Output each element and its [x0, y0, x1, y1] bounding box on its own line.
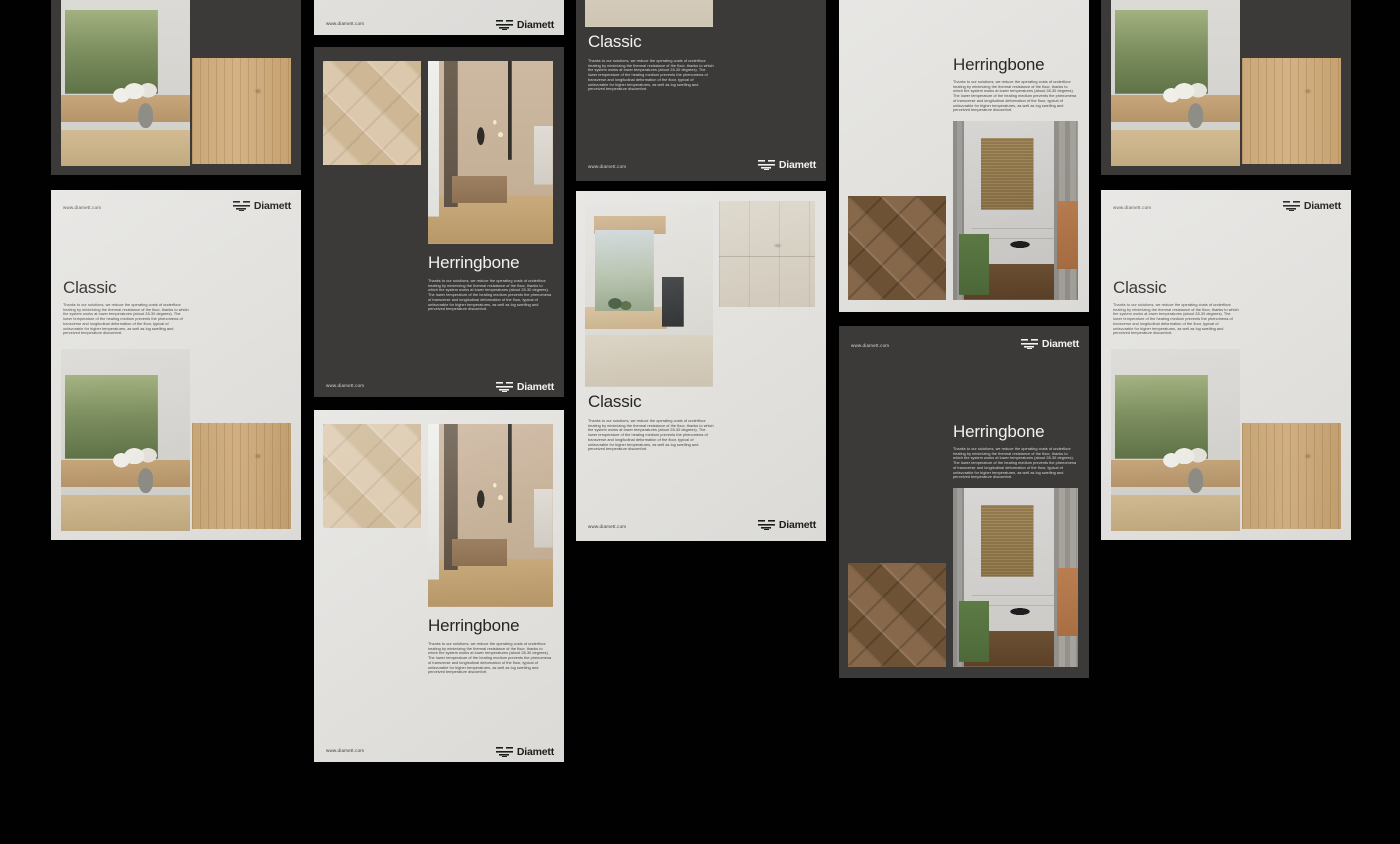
poster-page: Classic Thanks to our solutions, we redu…: [576, 191, 826, 541]
diamett-logo-icon: [496, 19, 513, 31]
poster-page: www.diamett.com Diamett Classic Thanks t…: [51, 190, 301, 540]
window-bench-photo: [1111, 349, 1240, 531]
window-bench-photo: [61, 349, 190, 531]
oak-swatch-image: [1242, 58, 1341, 164]
poster-herringbone-dark: www.diamett.com Diamett Herringbone Than…: [839, 326, 1089, 678]
poster-page: Herringbone Thanks to our solutions, we …: [314, 47, 564, 397]
brand-wordmark: Diamett: [1042, 339, 1079, 350]
diamett-logo-icon: [1021, 338, 1038, 350]
poster-title: Classic: [588, 392, 641, 412]
site-url: www.diamett.com: [63, 206, 101, 211]
poster-classic-dark-partial: [1101, 0, 1351, 175]
poster-page: www.diamett.com Diamett: [314, 0, 564, 35]
brand-wordmark: Diamett: [1304, 201, 1341, 212]
window-seat-photo: [585, 203, 713, 387]
poster-page: www.diamett.com Diamett Classic Thanks t…: [1101, 190, 1351, 540]
poster-title: Herringbone: [428, 616, 519, 636]
poster-classic-dark-partial: Classic Thanks to our solutions, we redu…: [576, 0, 826, 181]
interior-room-photo: [428, 424, 553, 607]
poster-body: Thanks to our solutions, we reduce the o…: [428, 642, 552, 675]
poster-body: Thanks to our solutions, we reduce the o…: [1113, 303, 1239, 336]
poster-title: Herringbone: [953, 55, 1044, 75]
diamett-logo: Diamett: [496, 381, 554, 393]
diamett-logo: Diamett: [1021, 338, 1079, 350]
brand-wordmark: Diamett: [517, 20, 554, 31]
portfolio-canvas: www.diamett.com Diamett Classic Thanks t…: [0, 0, 1400, 844]
poster-page: Classic Thanks to our solutions, we redu…: [576, 0, 826, 181]
poster-page: [51, 0, 301, 175]
diamett-logo-icon: [233, 200, 250, 212]
diamett-logo: Diamett: [496, 746, 554, 758]
poster-herringbone-light: Herringbone Thanks to our solutions, we …: [314, 410, 564, 762]
poster-herringbone-dark: Herringbone Thanks to our solutions, we …: [314, 47, 564, 397]
poster-herringbone-light-partial: www.diamett.com Diamett: [314, 0, 564, 35]
poster-title: Classic: [588, 32, 641, 52]
poster-body: Thanks to our solutions, we reduce the o…: [588, 419, 714, 452]
diamett-logo-icon: [758, 519, 775, 531]
site-url: www.diamett.com: [326, 749, 364, 754]
interior-room-photo: [428, 61, 553, 244]
brand-wordmark: Diamett: [779, 520, 816, 531]
site-url: www.diamett.com: [1113, 206, 1151, 211]
walnut-herringbone-swatch-image: [848, 563, 946, 667]
poster-herringbone-light-partial: Herringbone Thanks to our solutions, we …: [839, 0, 1089, 312]
diamett-logo-icon: [496, 746, 513, 758]
poster-page: [1101, 0, 1351, 175]
oak-swatch-image: [192, 423, 291, 529]
pale-plank-swatch-image: [719, 201, 815, 307]
poster-title: Classic: [1113, 278, 1166, 298]
site-url: www.diamett.com: [326, 22, 364, 27]
diamett-logo-icon: [496, 381, 513, 393]
poster-classic-dark-partial: [51, 0, 301, 175]
brand-wordmark: Diamett: [517, 382, 554, 393]
herringbone-light-swatch-image: [323, 61, 421, 165]
poster-body: Thanks to our solutions, we reduce the o…: [428, 279, 552, 312]
poster-body: Thanks to our solutions, we reduce the o…: [953, 447, 1077, 480]
diamett-logo-icon: [758, 159, 775, 171]
lounge-interior-photo: [953, 121, 1078, 300]
brand-wordmark: Diamett: [517, 747, 554, 758]
lounge-interior-photo: [953, 488, 1078, 667]
diamett-logo: Diamett: [758, 519, 816, 531]
poster-title: Classic: [63, 278, 116, 298]
site-url: www.diamett.com: [588, 525, 626, 530]
window-bench-photo: [1111, 0, 1240, 166]
site-url: www.diamett.com: [588, 165, 626, 170]
window-bench-photo: [61, 0, 190, 166]
oak-swatch-image: [1242, 423, 1341, 529]
poster-page: Herringbone Thanks to our solutions, we …: [839, 0, 1089, 312]
diamett-logo: Diamett: [1283, 200, 1341, 212]
site-url: www.diamett.com: [326, 384, 364, 389]
poster-title: Herringbone: [428, 253, 519, 273]
poster-classic-light: Classic Thanks to our solutions, we redu…: [576, 191, 826, 541]
brand-wordmark: Diamett: [779, 160, 816, 171]
site-url: www.diamett.com: [851, 344, 889, 349]
walnut-herringbone-swatch-image: [848, 196, 946, 300]
poster-page: Herringbone Thanks to our solutions, we …: [314, 410, 564, 762]
poster-title: Herringbone: [953, 422, 1044, 442]
diamett-logo: Diamett: [233, 200, 291, 212]
herringbone-light-swatch-image: [323, 424, 421, 528]
diamett-logo: Diamett: [496, 19, 554, 31]
diamett-logo-icon: [1283, 200, 1300, 212]
poster-body: Thanks to our solutions, we reduce the o…: [63, 303, 189, 336]
diamett-logo: Diamett: [758, 159, 816, 171]
poster-classic-light: www.diamett.com Diamett Classic Thanks t…: [1101, 190, 1351, 540]
poster-body: Thanks to our solutions, we reduce the o…: [953, 80, 1077, 113]
brand-wordmark: Diamett: [254, 201, 291, 212]
window-seat-photo: [585, 0, 713, 27]
poster-classic-light: www.diamett.com Diamett Classic Thanks t…: [51, 190, 301, 540]
poster-page: www.diamett.com Diamett Herringbone Than…: [839, 326, 1089, 678]
oak-swatch-image: [192, 58, 291, 164]
poster-body: Thanks to our solutions, we reduce the o…: [588, 59, 714, 92]
